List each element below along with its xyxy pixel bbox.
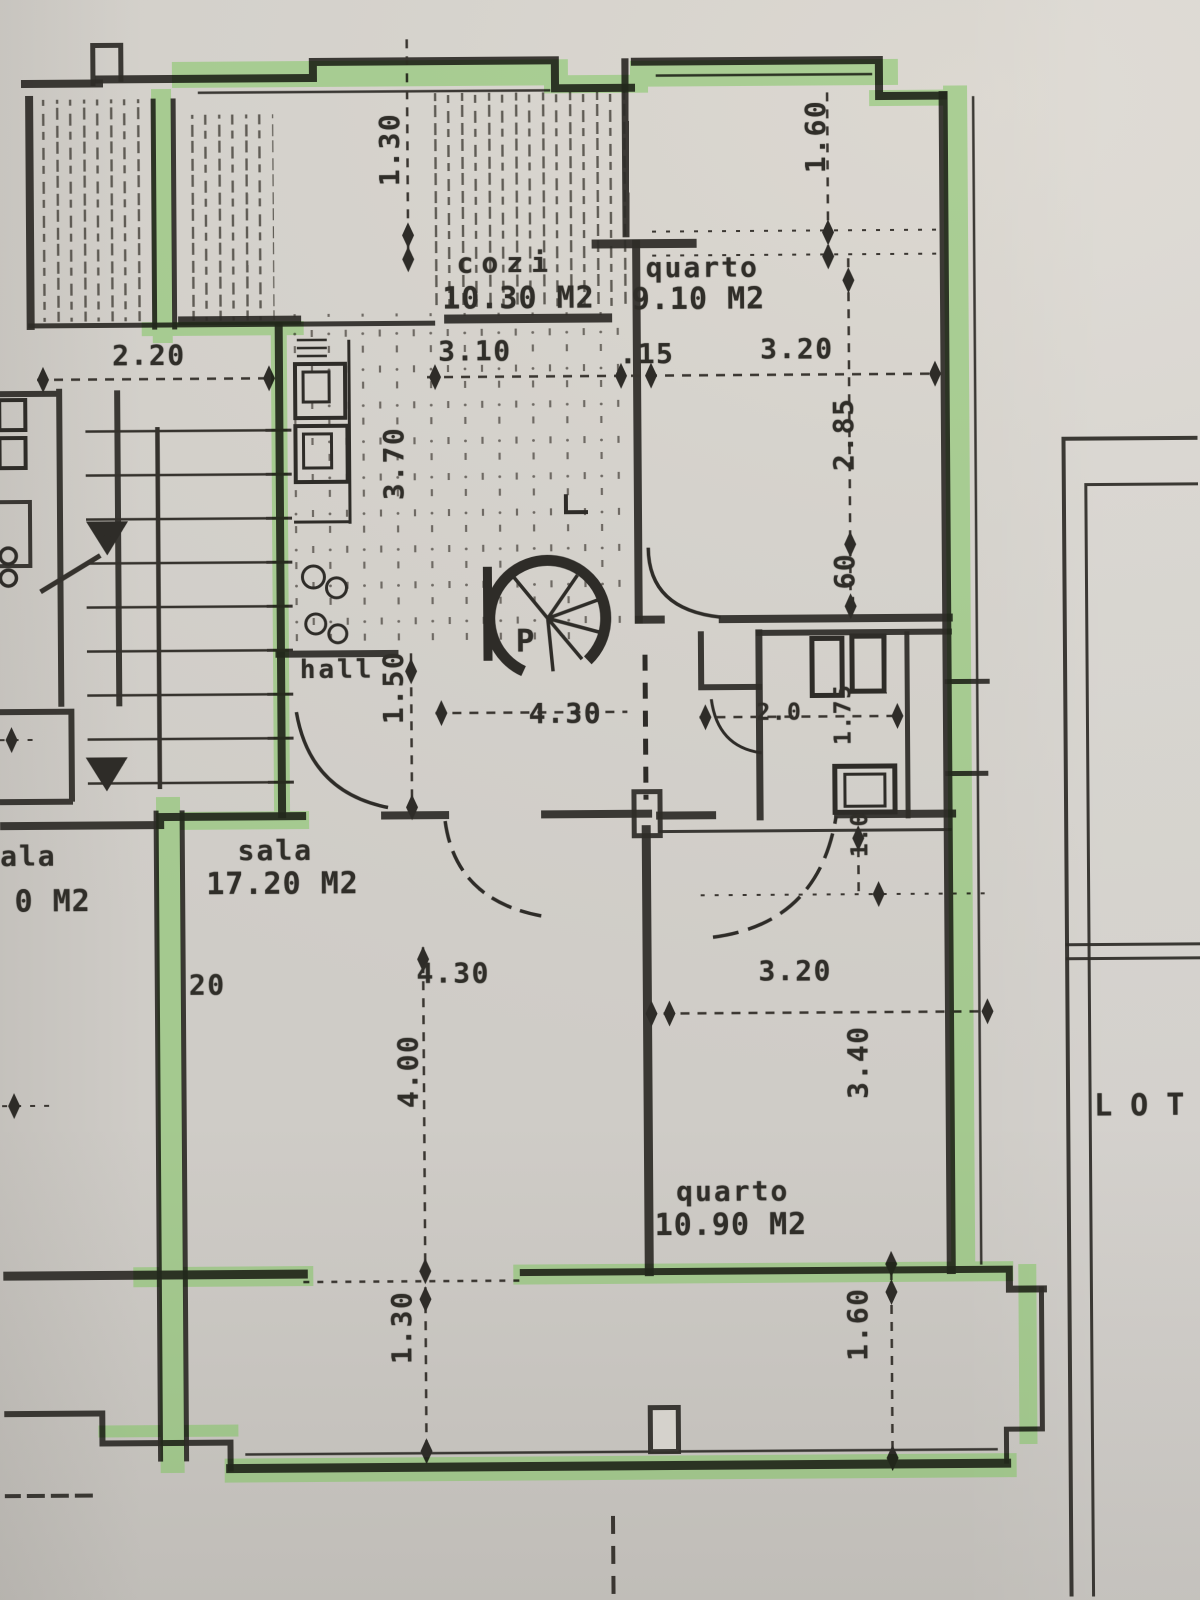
staircase	[39, 426, 294, 792]
dim-terrace-depth-top: 1.30	[373, 113, 407, 187]
dim-hall-width: 1.50	[376, 651, 410, 725]
dim-bedroom1-depth: 2.85	[827, 397, 861, 471]
room-area-living: 17.20 M2	[206, 866, 359, 902]
dim-living-wall: 20	[189, 968, 226, 1001]
room-area-kitchen: 10.30 M2	[442, 281, 595, 317]
room-label-bedroom2: quarto	[676, 1174, 789, 1208]
room-area-neighbor: 0 M2	[14, 884, 90, 920]
spiral-stair-label: P	[516, 623, 536, 659]
dim-bath-width: 2.0	[756, 700, 802, 726]
dim-terrace-width: 2.20	[112, 338, 186, 372]
room-label-bedroom1: quarto	[646, 250, 759, 284]
dim-kitchen-width: 3.10	[438, 334, 512, 368]
dim-bedroom1-width: 3.20	[760, 332, 834, 366]
floorplan-drawing	[0, 0, 1200, 1600]
room-label-neighbor: ala	[0, 839, 57, 872]
dim-bath-length: 1.75	[830, 684, 856, 746]
dim-wall: .15	[619, 337, 674, 370]
dim-balcony-depth-left: 1.30	[385, 1291, 419, 1365]
room-area-bedroom1: 9.10 M2	[632, 281, 766, 317]
dim-recess: .60	[828, 553, 861, 608]
room-label-kitchen: cozi	[456, 246, 556, 280]
dim-living-width: 4.30	[416, 956, 490, 990]
dim-corridor-length: 4.30	[529, 696, 603, 730]
dim-kitchen-depth: 3.70	[377, 427, 411, 501]
dim-bedroom2-width: 3.20	[758, 954, 832, 988]
dim-bedroom1-terrace-depth: 1.60	[799, 100, 833, 174]
room-area-bedroom2: 10.90 M2	[655, 1207, 808, 1243]
dim-bedroom2-depth: 3.40	[841, 1025, 875, 1099]
dim-living-depth: 4.00	[391, 1035, 425, 1109]
plan-tilt-wrapper: 1.30 2.20 3.10 .15 3.20 1.60 3.70 2.85 .…	[0, 0, 1200, 1600]
room-label-hall: hall	[300, 655, 375, 686]
lot-label: LOTE	[1094, 1088, 1200, 1124]
dim-balcony-depth-right: 1.60	[841, 1287, 875, 1361]
room-label-living: sala	[238, 834, 314, 868]
floorplan-photo: 1.30 2.20 3.10 .15 3.20 1.60 3.70 2.85 .…	[0, 0, 1200, 1600]
dim-bath-recess: 1.0	[847, 811, 873, 857]
